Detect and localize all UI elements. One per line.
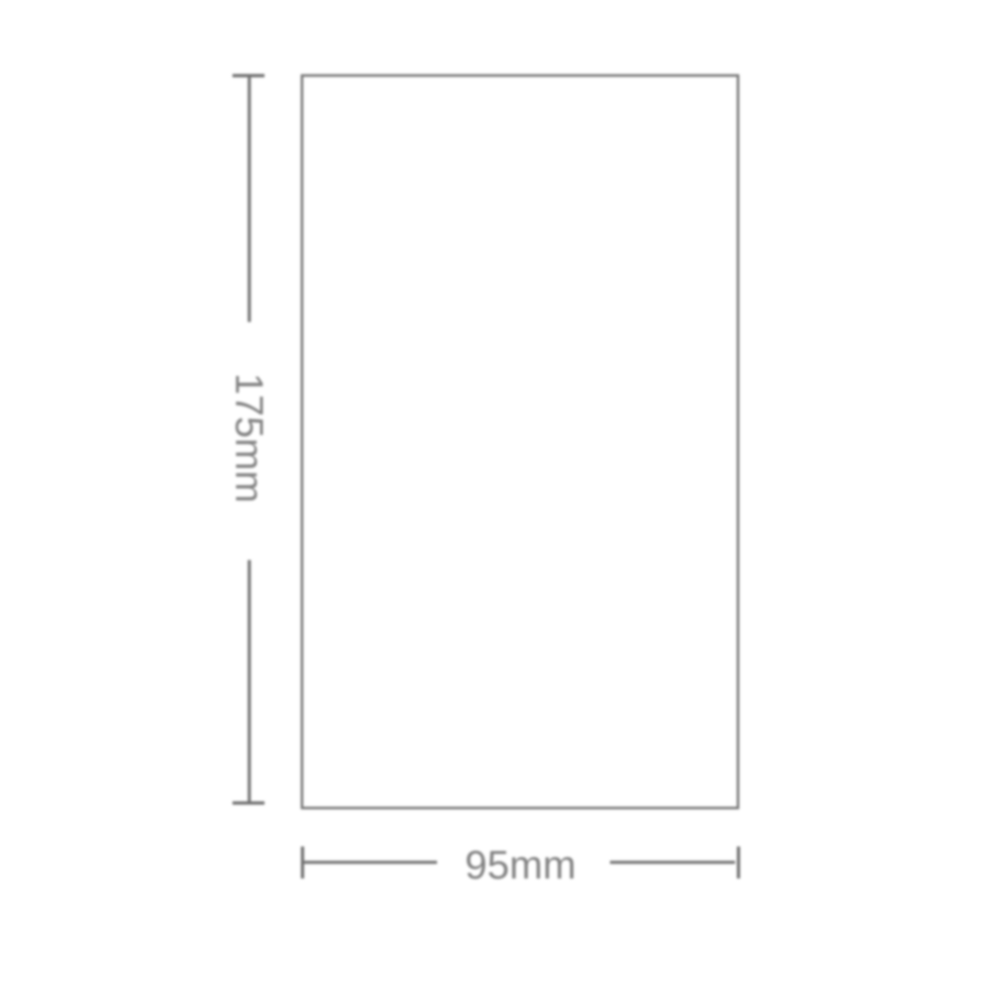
svg-text:175mm: 175mm <box>227 373 270 503</box>
svg-text:95mm: 95mm <box>465 844 576 888</box>
